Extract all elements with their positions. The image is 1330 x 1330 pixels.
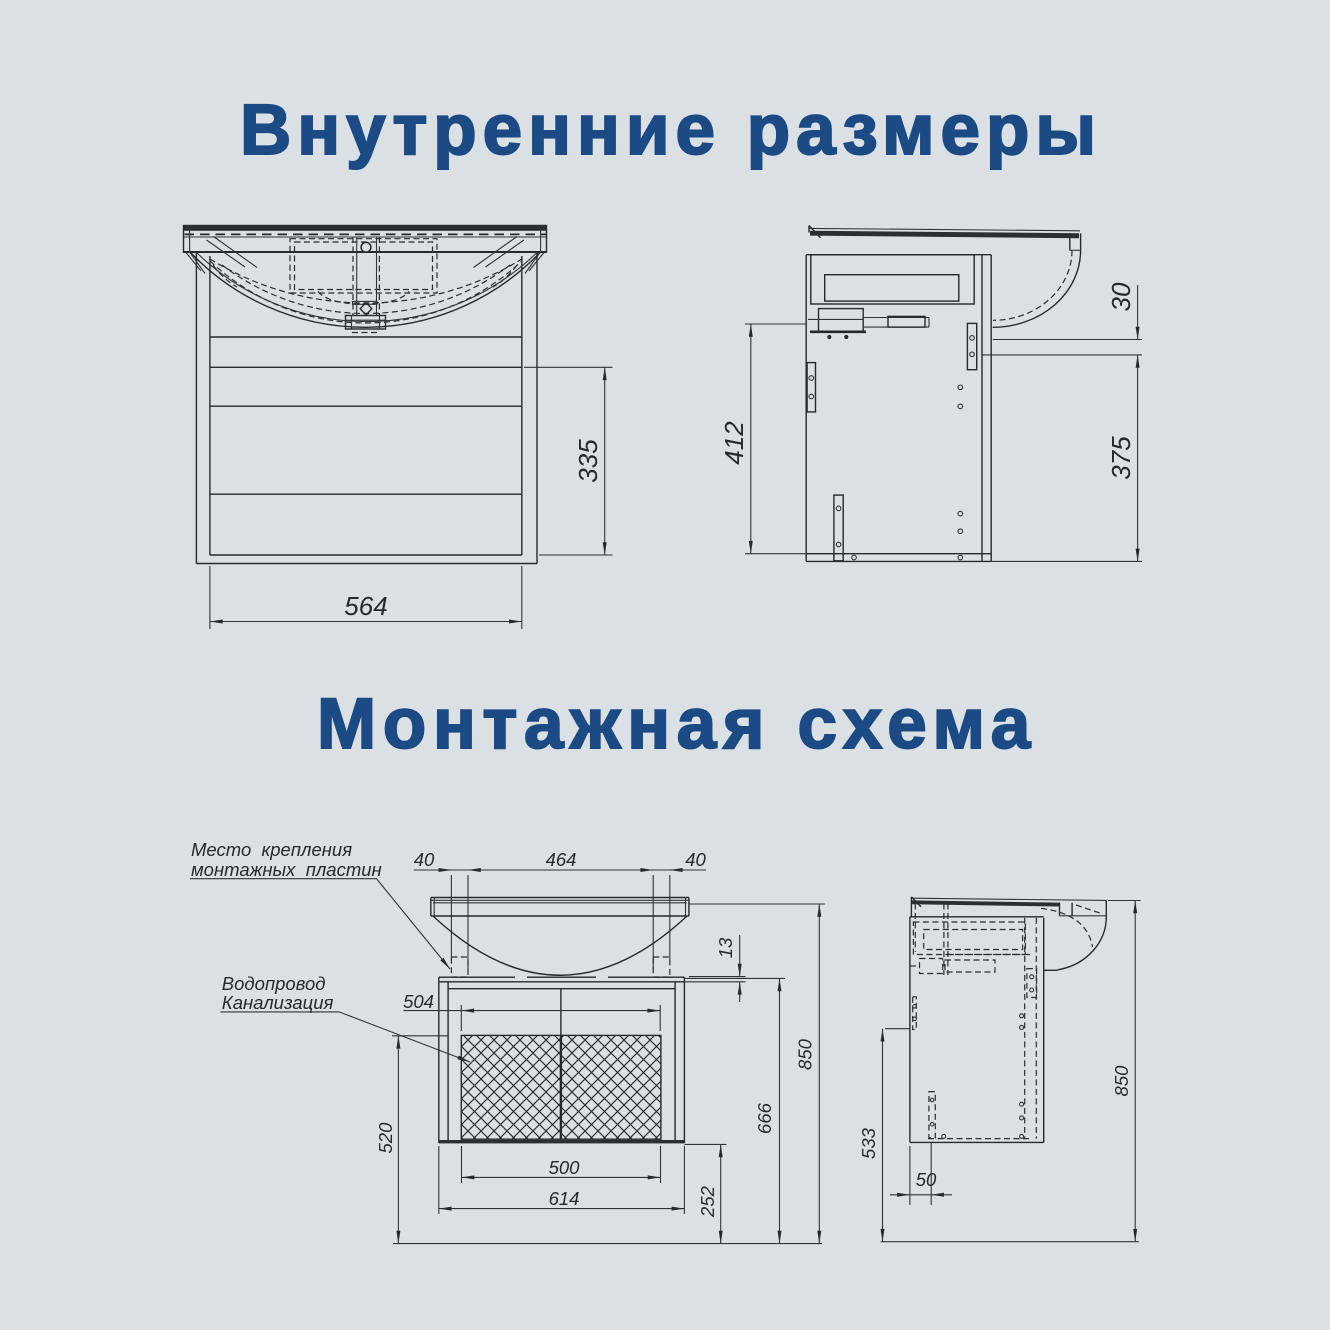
svg-text:850: 850 bbox=[1111, 1065, 1132, 1097]
svg-text:533: 533 bbox=[858, 1127, 879, 1159]
svg-text:666: 666 bbox=[754, 1102, 775, 1134]
svg-text:375: 375 bbox=[1106, 436, 1136, 480]
svg-text:монтажных пластин: монтажных пластин bbox=[191, 859, 382, 880]
svg-text:40: 40 bbox=[414, 849, 435, 870]
svg-text:564: 564 bbox=[344, 591, 387, 621]
svg-text:40: 40 bbox=[685, 849, 706, 870]
svg-text:50: 50 bbox=[916, 1169, 937, 1190]
svg-text:520: 520 bbox=[375, 1122, 396, 1154]
svg-text:30: 30 bbox=[1106, 282, 1136, 311]
svg-text:13: 13 bbox=[715, 937, 736, 958]
svg-text:850: 850 bbox=[795, 1038, 816, 1070]
svg-text:252: 252 bbox=[697, 1185, 718, 1218]
svg-text:614: 614 bbox=[549, 1188, 580, 1209]
svg-text:Водопровод: Водопровод bbox=[222, 973, 326, 994]
svg-text:500: 500 bbox=[549, 1157, 581, 1178]
svg-text:Внутренние размеры: Внутренние размеры bbox=[240, 91, 1102, 170]
svg-text:Канализация: Канализация bbox=[222, 992, 334, 1013]
svg-text:335: 335 bbox=[573, 439, 603, 483]
svg-text:412: 412 bbox=[719, 421, 749, 465]
svg-text:504: 504 bbox=[403, 991, 434, 1012]
svg-text:Монтажная схема: Монтажная схема bbox=[317, 685, 1037, 764]
svg-text:464: 464 bbox=[546, 849, 577, 870]
svg-text:Место крепления: Место крепления bbox=[191, 839, 352, 860]
